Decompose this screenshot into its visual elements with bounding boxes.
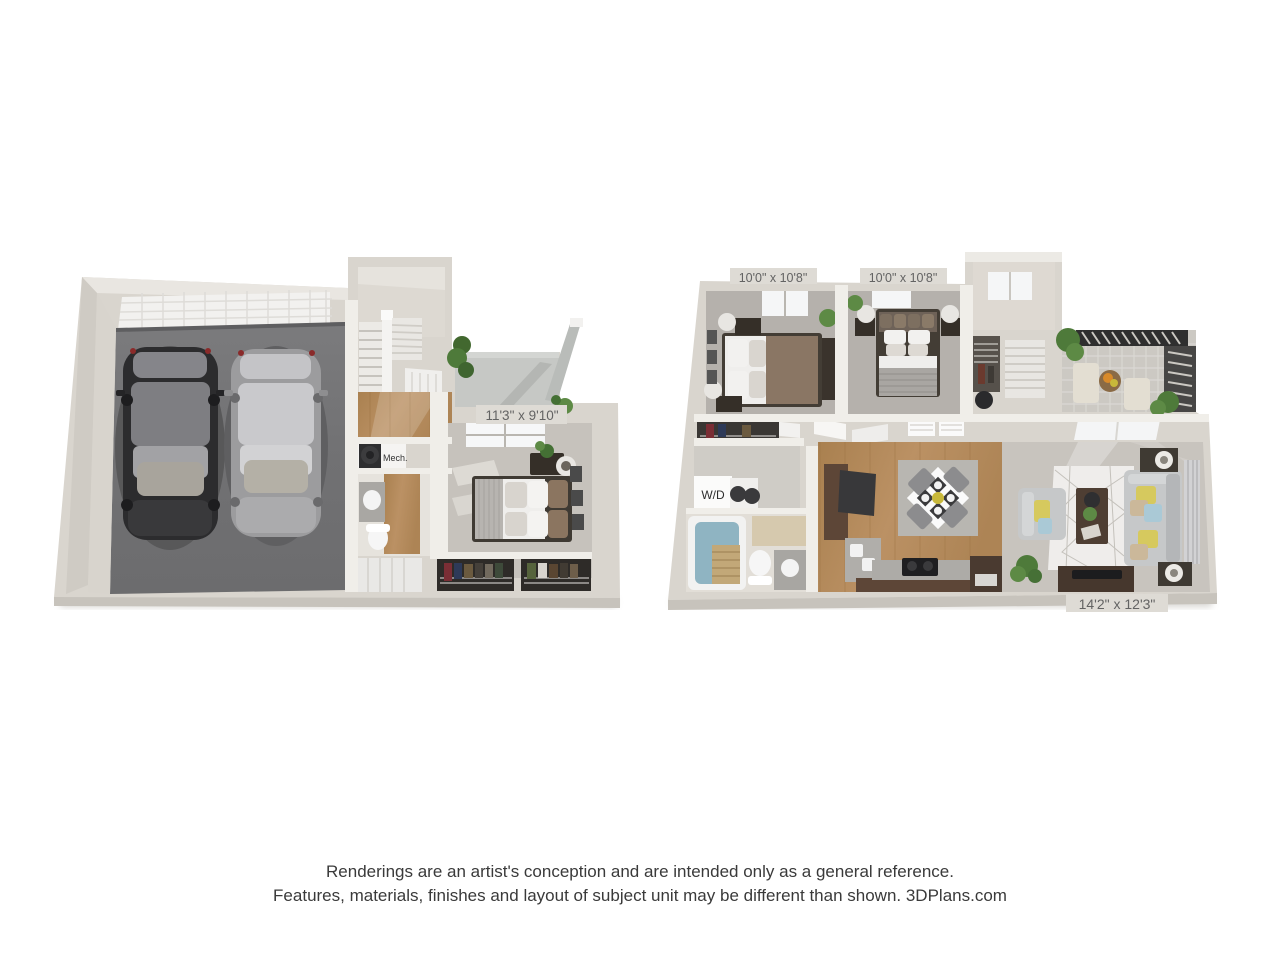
svg-text:Mech.: Mech. (383, 453, 408, 463)
svg-text:Renderings are an artist's con: Renderings are an artist's conception an… (326, 862, 954, 881)
svg-text:W/D: W/D (701, 488, 725, 502)
svg-text:14'2" x 12'3": 14'2" x 12'3" (1079, 596, 1156, 612)
svg-text:11'3" x 9'10": 11'3" x 9'10" (485, 408, 558, 423)
svg-text:Features, materials, finishes: Features, materials, finishes and layout… (273, 886, 1007, 905)
svg-text:10'0" x 10'8": 10'0" x 10'8" (739, 271, 808, 285)
svg-text:10'0" x 10'8": 10'0" x 10'8" (869, 271, 938, 285)
